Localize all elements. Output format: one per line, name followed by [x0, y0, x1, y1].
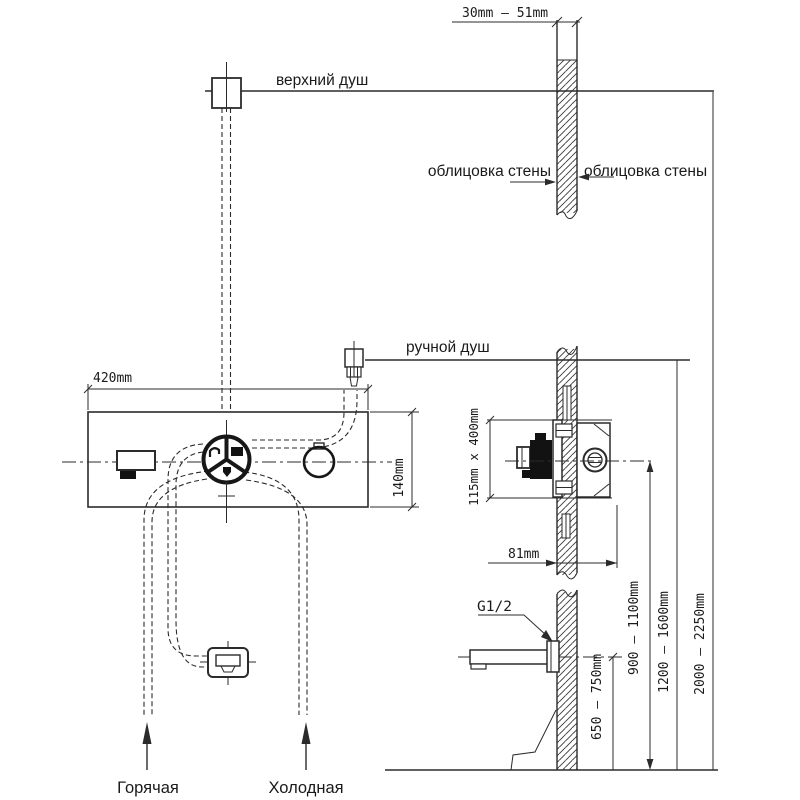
dim-spout-height: 650 — 750mm — [590, 653, 617, 770]
overhead-shower: верхний душ — [205, 62, 714, 438]
hand-shower-outlet — [345, 341, 363, 386]
overhead-height-label: 2000 — 2250mm — [693, 593, 708, 695]
spout-nozzle — [471, 664, 486, 669]
spout-body — [470, 650, 550, 664]
recess-depth-label: 81mm — [508, 547, 539, 562]
valve-screw — [584, 449, 607, 472]
diagram-canvas: 30mm — 51mm верхний душ облицовка стены … — [0, 0, 800, 800]
cladding-callout-right: облицовка стены — [578, 163, 707, 180]
dim-recess-depth: 81mm — [488, 505, 617, 568]
hot-supply-arrow: Горячая — [117, 722, 179, 797]
dim-overhead-height: 2000 — 2250mm — [693, 92, 713, 770]
thread-callout: G1/2 — [477, 599, 553, 642]
recess-size-label: 115mm x 400mm — [466, 408, 481, 506]
cladding-left-label: облицовка стены — [428, 163, 551, 180]
installation-diagram: 30mm — 51mm верхний душ облицовка стены … — [0, 0, 800, 800]
hand-shower-label: ручной душ — [406, 339, 490, 356]
dim-wall-thickness: 30mm — 51mm — [452, 6, 582, 27]
wall-thickness-label: 30mm — 51mm — [462, 6, 548, 21]
spout-outlet-front — [200, 641, 256, 685]
cold-supply-label: Холодная — [268, 779, 343, 797]
dim-hand-shower-height: 1200 — 1600mm — [657, 360, 677, 770]
mixer-height-label: 900 — 1100mm — [627, 581, 642, 675]
dim-mixer-height: 900 — 1100mm — [627, 461, 653, 770]
hand-shower: ручной душ — [345, 339, 690, 386]
spout-height-label: 650 — 750mm — [590, 654, 605, 740]
valve-body — [577, 423, 610, 497]
tub-profile — [511, 710, 556, 770]
spout-flange — [547, 641, 559, 672]
wall-section-top — [557, 20, 577, 219]
hand-shower-height-label: 1200 — 1600mm — [657, 591, 672, 693]
thread-size-label: G1/2 — [477, 599, 512, 615]
valve-handle — [517, 433, 552, 479]
panel-height-label: 140mm — [392, 458, 407, 497]
cold-supply-arrow: Холодная — [268, 722, 343, 797]
wall-section-bottom — [557, 590, 577, 770]
cladding-callout-left: облицовка стены — [428, 163, 556, 185]
hot-supply-label: Горячая — [117, 779, 179, 797]
square-glyph-icon — [231, 447, 243, 456]
dim-panel-height: 140mm — [370, 408, 419, 511]
panel-width-label: 420mm — [93, 371, 132, 386]
dim-panel-width: 420mm — [84, 371, 372, 410]
overhead-shower-label: верхний душ — [276, 72, 368, 89]
